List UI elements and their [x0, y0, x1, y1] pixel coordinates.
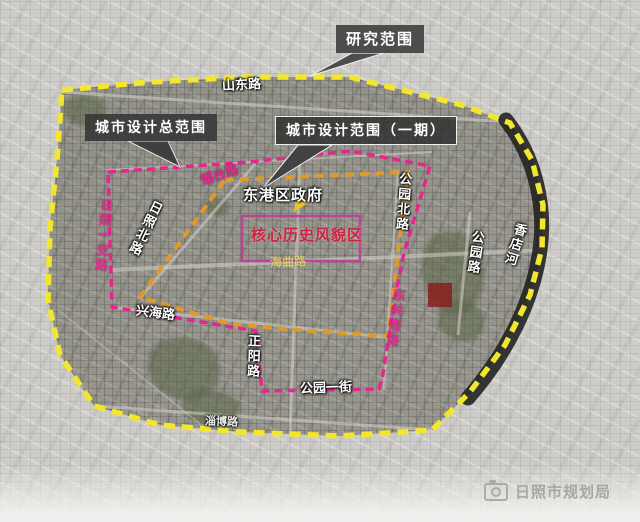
research-callout: 研究范围 — [336, 25, 424, 53]
research-callout-tail — [310, 53, 384, 76]
road-label-zhengyang: 正阳路 — [245, 334, 260, 379]
road-label-haiqu: 海曲路 — [270, 255, 306, 269]
camera-icon — [484, 483, 508, 501]
planning-map: 研究范围 城市设计总范围 城市设计范围（一期） 东港区政府 核心历史风貌区 山东… — [0, 0, 640, 522]
phase1-callout: 城市设计范围（一期） — [275, 116, 457, 145]
landmark-red-block — [428, 283, 452, 307]
phase1-callout-label: 城市设计范围（一期） — [286, 122, 446, 138]
road-label-gongyuan-north: 公园北路 — [394, 172, 412, 233]
total-scope-callout-label: 城市设计总范围 — [95, 119, 207, 135]
road-label-shandong: 山东路 — [222, 77, 262, 93]
road-label-gongyuan-first-street: 公园一街 — [300, 380, 352, 395]
watermark-agency: 日照市规划局 — [515, 481, 611, 502]
road-label-zibo: 淄博路 — [205, 416, 238, 429]
total-scope-callout-tail — [128, 141, 180, 167]
watermark: 日照市规划局 — [484, 481, 611, 502]
total-scope-callout: 城市设计总范围 — [85, 114, 217, 141]
phase1-callout-tail — [263, 145, 332, 188]
district-government-label: 东港区政府 — [243, 188, 323, 204]
research-callout-label: 研究范围 — [346, 31, 414, 48]
core-historic-area-label: 核心历史风貌区 — [251, 228, 363, 244]
